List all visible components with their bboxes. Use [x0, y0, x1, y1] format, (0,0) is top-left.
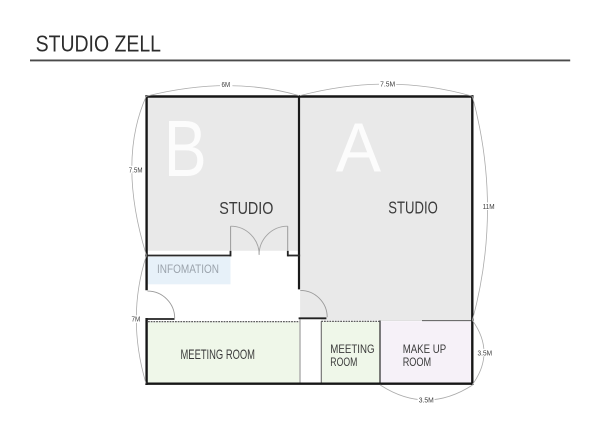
- svg-text:ROOM: ROOM: [330, 355, 357, 369]
- svg-text:ROOM: ROOM: [403, 355, 432, 369]
- svg-text:STUDIO: STUDIO: [219, 198, 273, 218]
- svg-text:3.5M: 3.5M: [419, 395, 434, 404]
- svg-text:STUDIO: STUDIO: [388, 198, 438, 218]
- svg-text:INFOMATION: INFOMATION: [157, 262, 219, 276]
- svg-text:6M: 6M: [222, 80, 231, 89]
- svg-text:MEETING ROOM: MEETING ROOM: [181, 347, 256, 362]
- svg-text:7.5M: 7.5M: [380, 80, 395, 89]
- svg-text:B: B: [164, 104, 207, 193]
- svg-text:3.5M: 3.5M: [478, 349, 493, 358]
- svg-text:A: A: [336, 109, 382, 187]
- svg-text:STUDIO ZELL: STUDIO ZELL: [36, 31, 161, 57]
- svg-text:7.5M: 7.5M: [129, 165, 143, 174]
- svg-text:11M: 11M: [483, 202, 495, 211]
- svg-text:7M: 7M: [132, 315, 141, 324]
